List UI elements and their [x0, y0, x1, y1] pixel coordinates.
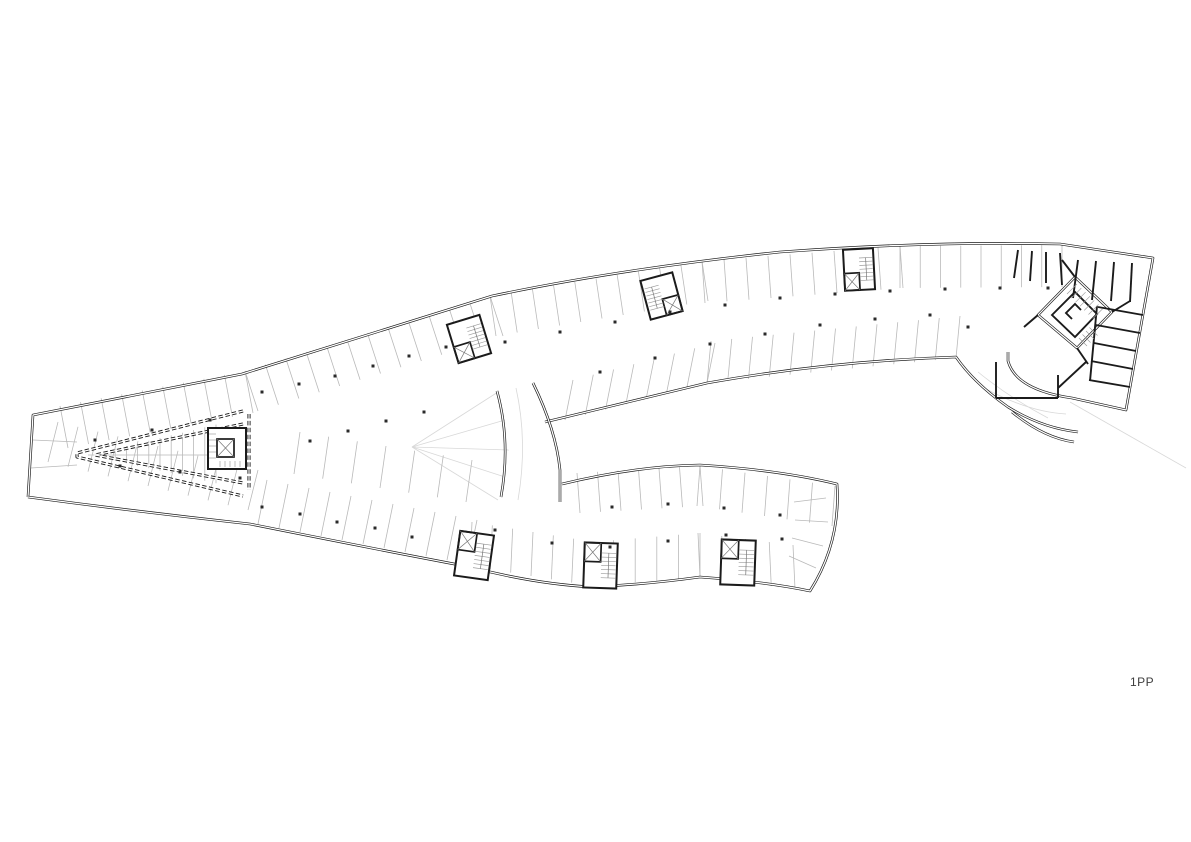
stair-core: [447, 315, 491, 363]
outer-wall-bottom: [28, 465, 837, 591]
stair-core: [843, 248, 875, 291]
stair-core-wedge: [208, 428, 246, 469]
right-core-wall: [1052, 292, 1097, 337]
floor-markings: [412, 372, 1186, 500]
stair-core: [583, 542, 618, 588]
stair-core: [454, 531, 494, 580]
stair-core: [640, 272, 682, 319]
stair-core: [720, 539, 756, 585]
ramp-wall-outer: [1012, 412, 1074, 442]
floor-plan-sheet: 1PP: [0, 0, 1191, 842]
mid-ramp-wall-right: [533, 383, 560, 502]
outer-walls: [28, 243, 1153, 591]
right-core-elevator-wall: [1066, 304, 1081, 319]
band-bottom-wall-and-ramp: [545, 357, 1078, 432]
column-markers: [94, 287, 1050, 549]
parking-floor-plan-drawing: [0, 0, 1191, 842]
floor-label: 1PP: [1130, 675, 1170, 689]
